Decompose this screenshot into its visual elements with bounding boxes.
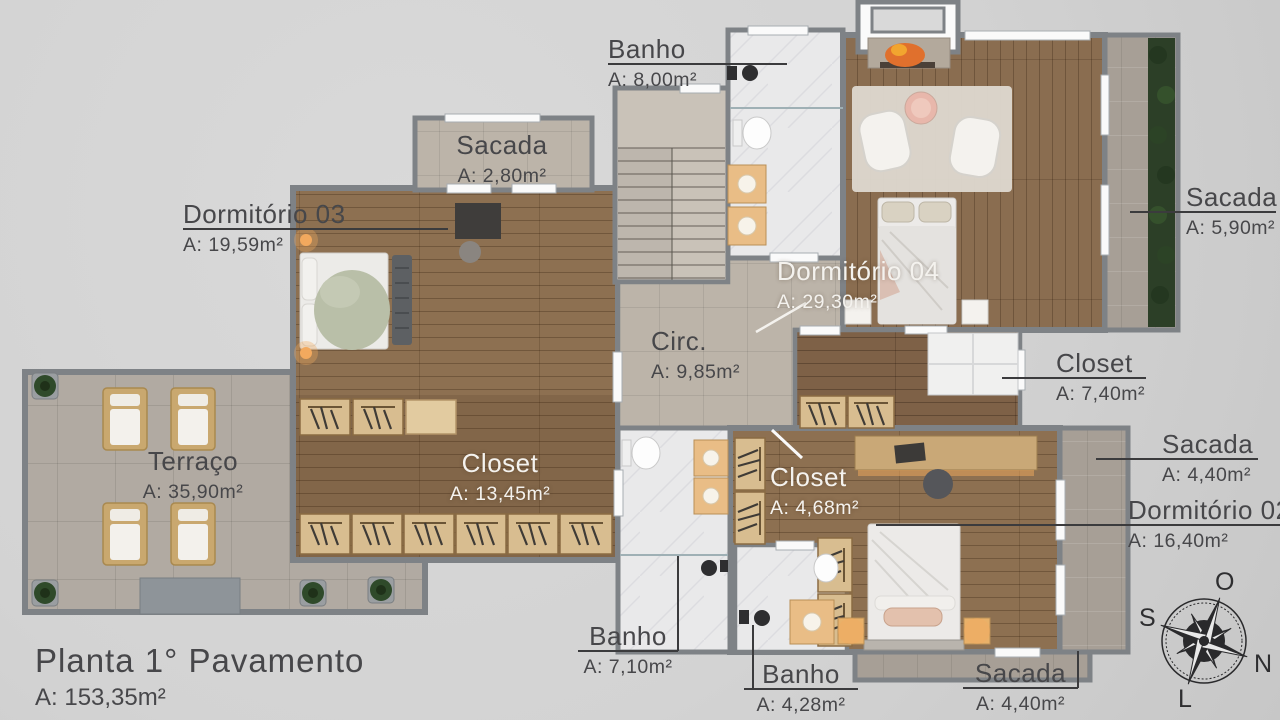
room-label-terraco: Terraço A: 35,90m² [143, 446, 243, 504]
room-label-closet-dorm04: Closet A: 7,40m² [1056, 348, 1145, 406]
room-label-sacada-superior: Sacada A: 2,80m² [456, 130, 547, 188]
plan-title: Planta 1° Pavamento A: 153,35m² [35, 641, 364, 713]
room-area: A: 19,59m² [183, 233, 346, 257]
room-label-sacada-direita-superior: Sacada A: 5,90m² [1186, 182, 1277, 240]
room-label-banho-superior: Banho A: 8,00m² [608, 34, 697, 92]
potted-plant [32, 373, 58, 399]
room-name: Banho [608, 34, 697, 64]
room-label-circulacao: Circ. A: 9,85m² [651, 326, 740, 384]
dorm04-side-table [905, 92, 937, 124]
lounge-chair [103, 503, 147, 565]
room-area: A: 8,00m² [608, 68, 697, 92]
room-name: Sacada [1162, 429, 1253, 459]
room-name: Closet [450, 448, 550, 478]
room-area: A: 4,68m² [770, 496, 859, 520]
room-name: Banho [744, 659, 858, 689]
room-label-banho-meio: Banho A: 7,10m² [578, 621, 678, 679]
stairs [615, 88, 728, 282]
compass-letter-leste: L [1178, 685, 1192, 714]
room-name: Banho [578, 621, 678, 651]
room-name: Closet [770, 462, 859, 492]
terrace-doormat [140, 578, 240, 614]
room-area: A: 4,28m² [744, 693, 858, 717]
room-name: Dormitório 02 [1128, 495, 1280, 525]
room-name: Terraço [143, 446, 243, 476]
plan-title-area: A: 153,35m² [35, 683, 364, 713]
room-area: A: 16,40m² [1128, 529, 1280, 553]
room-label-sacada-direita-meio: Sacada A: 4,40m² [1162, 429, 1253, 487]
dorm04-fireplace [858, 2, 958, 68]
room-name: Closet [1056, 348, 1145, 378]
room-label-closet-dorm03: Closet A: 13,45m² [450, 448, 550, 506]
sacada-direita-meio-floor [1060, 428, 1128, 652]
floor-plan-page: Banho A: 8,00m² Sacada A: 2,80m² Dormitó… [0, 0, 1280, 720]
compass-letter-oeste: O [1215, 568, 1234, 597]
room-area: A: 9,85m² [651, 360, 740, 384]
room-name: Sacada [963, 658, 1078, 688]
dorm03-bench [392, 255, 412, 345]
room-label-dormitorio-04: Dormitório 04 A: 29,30m² [777, 256, 940, 314]
room-name: Dormitório 03 [183, 199, 346, 229]
room-area: A: 5,90m² [1186, 216, 1277, 240]
room-name: Sacada [456, 130, 547, 160]
potted-plant [368, 577, 394, 603]
balcony-hedge [1148, 38, 1175, 327]
room-area: A: 7,40m² [1056, 382, 1145, 406]
lounge-chair [103, 388, 147, 450]
room-area: A: 4,40m² [1162, 463, 1253, 487]
room-name: Circ. [651, 326, 740, 356]
room-label-dormitorio-02: Dormitório 02 A: 16,40m² [1128, 495, 1280, 553]
potted-plant [32, 580, 58, 606]
plan-title-text: Planta 1° Pavamento [35, 641, 364, 681]
lounge-chair [171, 388, 215, 450]
room-area: A: 35,90m² [143, 480, 243, 504]
room-area: A: 7,10m² [578, 655, 678, 679]
dorm02-bed [864, 524, 964, 650]
lounge-chair [171, 503, 215, 565]
compass-letter-norte: N [1254, 650, 1272, 679]
compass-rose [1145, 582, 1263, 700]
room-name: Sacada [1186, 182, 1277, 212]
room-label-sacada-inferior: Sacada A: 4,40m² [963, 658, 1078, 716]
room-area: A: 13,45m² [450, 482, 550, 506]
room-label-dormitorio-03: Dormitório 03 A: 19,59m² [183, 199, 346, 257]
compass-letter-sul: S [1139, 604, 1156, 633]
room-area: A: 4,40m² [963, 692, 1078, 716]
room-name: Dormitório 04 [777, 256, 940, 286]
room-label-banho-inferior: Banho A: 4,28m² [744, 659, 858, 717]
room-area: A: 2,80m² [456, 164, 547, 188]
room-area: A: 29,30m² [777, 290, 940, 314]
dorm03-bed [300, 253, 390, 350]
potted-plant [300, 580, 326, 606]
room-label-closet-dorm02: Closet A: 4,68m² [770, 462, 859, 520]
